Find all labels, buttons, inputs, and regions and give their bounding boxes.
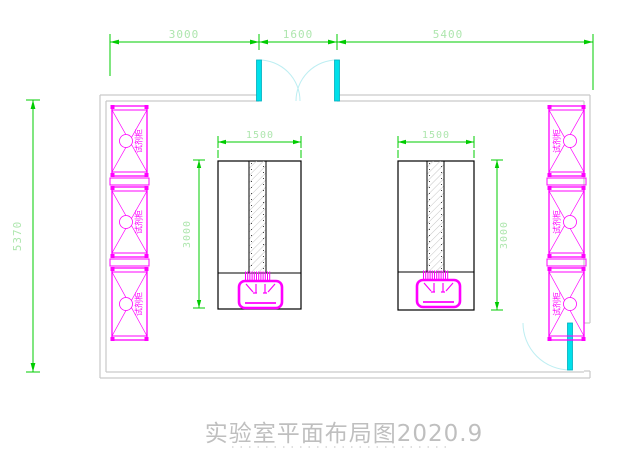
- reagent-shelf-hatch: [427, 161, 444, 272]
- cad-floor-plan: 试剂柜 试剂柜 试剂柜: [0, 0, 619, 469]
- reagent-cabinet: 试剂柜: [548, 186, 586, 258]
- reagent-cabinet: 试剂柜: [111, 267, 149, 341]
- double-door-top: [257, 60, 340, 101]
- cabinet-label: 试剂柜: [552, 292, 562, 316]
- dim-bench-width: 1500: [246, 130, 274, 141]
- cabinet-label: 试剂柜: [134, 210, 144, 234]
- cabinet-label: 试剂柜: [552, 210, 562, 234]
- door-swing-arc-right: [296, 60, 337, 101]
- door-leaf: [568, 323, 573, 370]
- cabinet-label: 试剂柜: [552, 129, 562, 153]
- cabinet-label: 试剂柜: [134, 292, 144, 316]
- cabinet-connector: [110, 178, 149, 185]
- dim-top-middle: 1600: [283, 28, 314, 41]
- cabinet-row-right: 试剂柜 试剂柜 试剂柜: [547, 105, 586, 341]
- reagent-cabinet: 试剂柜: [111, 186, 149, 258]
- lab-bench-left: [218, 161, 301, 309]
- cabinet-label: 试剂柜: [134, 129, 144, 153]
- dim-top-right: 5400: [433, 28, 464, 41]
- dim-bench-depth: 3000: [499, 221, 510, 249]
- dimension-bench-left-width: 1500: [218, 130, 301, 158]
- door-leaf-right: [335, 60, 340, 101]
- drawing-title: 实验室平面布局图2020.9: [205, 421, 483, 447]
- room-walls: [100, 95, 590, 378]
- cabinet-connector: [547, 178, 586, 185]
- floor-plan-drawing: 试剂柜 试剂柜 试剂柜: [0, 0, 619, 469]
- dim-bench-width: 1500: [422, 130, 450, 141]
- reagent-cabinet: 试剂柜: [111, 105, 149, 177]
- cabinet-connector: [110, 259, 149, 266]
- dimension-bench-left-depth: 3000: [182, 160, 205, 308]
- door-swing-arc: [523, 323, 570, 370]
- dim-top-left: 3000: [169, 28, 200, 41]
- single-door-right: [523, 323, 573, 370]
- dimension-bench-right-depth: 3000: [491, 160, 510, 310]
- door-jambs-right: [584, 323, 590, 371]
- cabinet-row-left: 试剂柜 试剂柜 试剂柜: [110, 105, 149, 341]
- dimension-room-height: 5370: [11, 100, 40, 372]
- dimension-bench-right-width: 1500: [398, 130, 474, 158]
- dim-room-height: 5370: [11, 221, 24, 252]
- door-jambs-top: [259, 95, 337, 101]
- door-leaf-left: [257, 60, 262, 101]
- reagent-cabinet: 试剂柜: [548, 105, 586, 177]
- reagent-cabinet: 试剂柜: [548, 267, 586, 341]
- dimension-top-chain: 3000 1600 5400: [110, 28, 593, 90]
- dim-bench-depth: 3000: [182, 220, 193, 248]
- door-swing-arc-left: [259, 60, 300, 101]
- cabinet-connector: [547, 259, 586, 266]
- lab-bench-right: [398, 161, 474, 310]
